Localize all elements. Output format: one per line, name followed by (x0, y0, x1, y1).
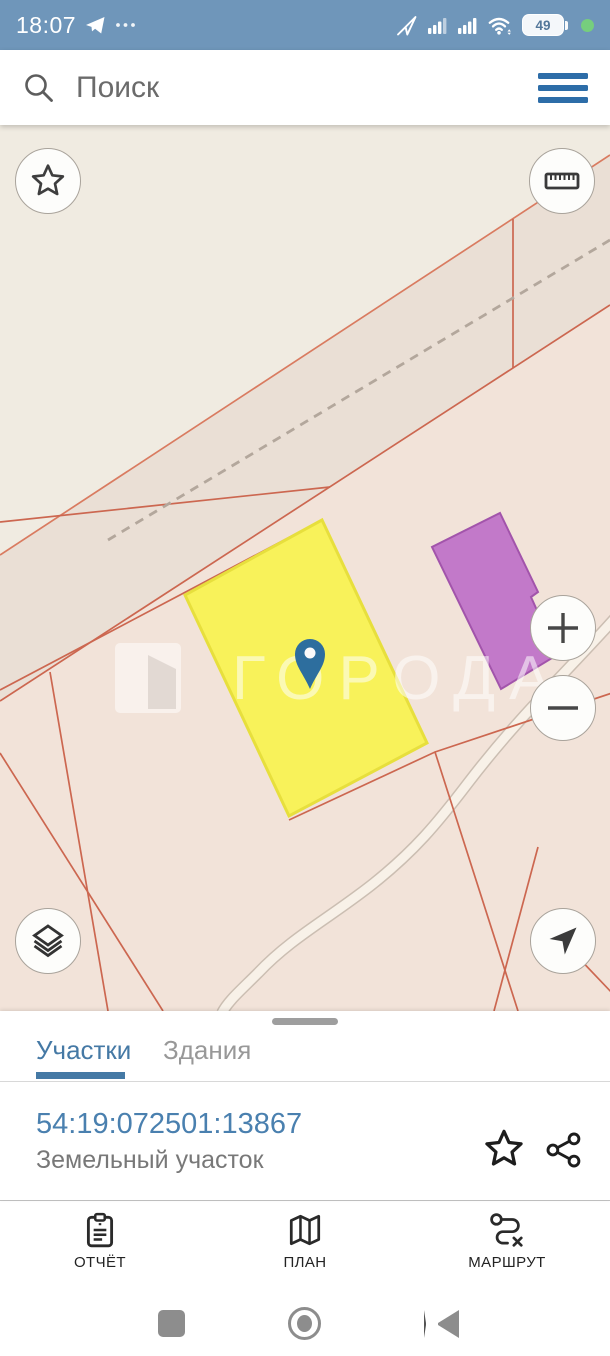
nav-route-button[interactable]: МАРШРУТ (437, 1201, 577, 1271)
report-clipboard-icon (81, 1211, 119, 1249)
watermark-text: ГОРОДА (232, 644, 565, 713)
signal-sim2-icon (457, 17, 478, 34)
nav-plan-button[interactable]: ПЛАН (235, 1201, 375, 1271)
more-notifications-icon (115, 21, 137, 29)
navigation-arrow-icon (545, 923, 581, 959)
route-icon (488, 1211, 526, 1249)
parcel-type-label: Земельный участок (36, 1146, 264, 1175)
zoom-in-button[interactable] (530, 595, 596, 661)
tab-parcels[interactable]: Участки (36, 1035, 131, 1066)
nav-route-label: МАРШРУТ (437, 1254, 577, 1271)
minus-icon (545, 690, 581, 726)
map-view[interactable]: ГОРОДА (0, 125, 610, 1011)
android-back-button[interactable] (424, 1310, 459, 1338)
search-icon (22, 71, 56, 105)
share-button[interactable] (544, 1130, 584, 1173)
favorite-parcel-button[interactable] (481, 1126, 527, 1175)
status-bar: 18:07 (0, 0, 610, 50)
nav-report-label: ОТЧЁТ (30, 1254, 170, 1271)
battery-indicator: 49 (522, 14, 568, 36)
nav-plan-label: ПЛАН (235, 1254, 375, 1271)
sheet-tabs: Участки Здания (0, 1011, 610, 1082)
android-home-button[interactable] (288, 1307, 321, 1340)
star-icon (481, 1126, 527, 1172)
favorites-button[interactable] (15, 148, 81, 214)
active-tab-underline (36, 1072, 125, 1079)
star-icon (28, 161, 68, 201)
telegram-notification-icon (85, 15, 106, 36)
locate-button[interactable] (530, 908, 596, 974)
folded-map-icon (286, 1211, 324, 1249)
tab-buildings[interactable]: Здания (163, 1035, 251, 1066)
menu-button[interactable] (538, 68, 588, 108)
layers-button[interactable] (15, 908, 81, 974)
bottom-sheet: Участки Здания 54:19:072501:13867 Земель… (0, 1011, 610, 1200)
share-icon (544, 1130, 584, 1170)
measure-button[interactable] (529, 148, 595, 214)
cadastral-number-link[interactable]: 54:19:072501:13867 (36, 1108, 302, 1141)
gps-active-icon (395, 14, 418, 37)
nav-report-button[interactable]: ОТЧЁТ (30, 1201, 170, 1271)
watermark-logo (115, 643, 181, 713)
battery-percent: 49 (522, 14, 564, 36)
recording-indicator-dot (581, 19, 594, 32)
search-bar (0, 50, 610, 125)
status-time: 18:07 (16, 12, 76, 39)
zoom-out-button[interactable] (530, 675, 596, 741)
android-recents-button[interactable] (158, 1310, 185, 1337)
search-input[interactable] (74, 70, 538, 106)
signal-sim1-icon (427, 17, 448, 34)
plus-icon (545, 610, 581, 646)
layers-icon (29, 922, 67, 960)
map-canvas: ГОРОДА (0, 125, 610, 1011)
bottom-nav: ОТЧЁТ ПЛАН МАРШРУТ (0, 1200, 610, 1291)
wifi-icon (487, 14, 513, 36)
app-screen: 18:07 (0, 0, 610, 1356)
ruler-icon (541, 160, 583, 202)
parcel-result-row: 54:19:072501:13867 Земельный участок (0, 1082, 610, 1200)
android-navbar (0, 1291, 610, 1356)
home-dot-icon (297, 1315, 312, 1332)
